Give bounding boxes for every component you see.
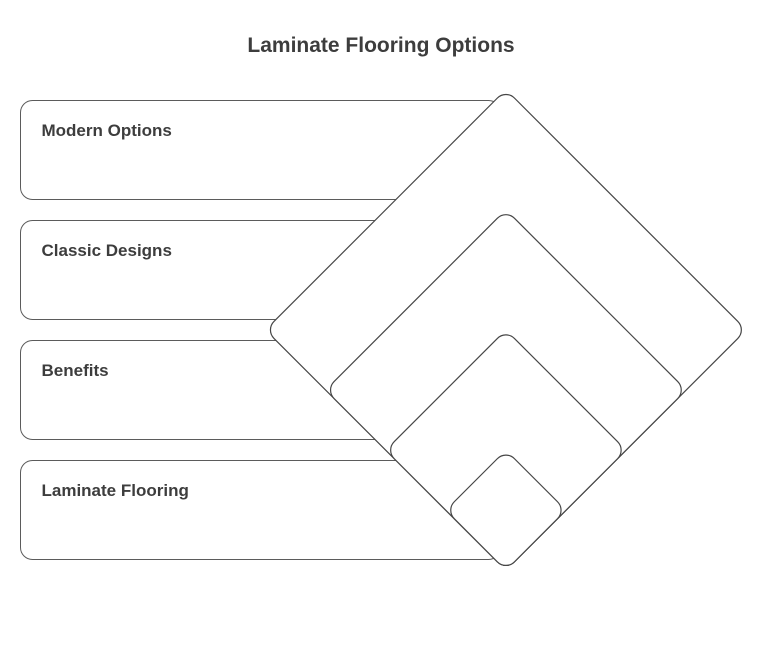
svg-text:Modern Options: Modern Options (42, 121, 172, 140)
svg-text:Benefits: Benefits (42, 361, 109, 380)
svg-text:Classic Designs: Classic Designs (42, 241, 172, 260)
svg-text:Laminate Flooring: Laminate Flooring (42, 481, 189, 500)
svg-text:Laminate Flooring Options: Laminate Flooring Options (247, 34, 514, 57)
